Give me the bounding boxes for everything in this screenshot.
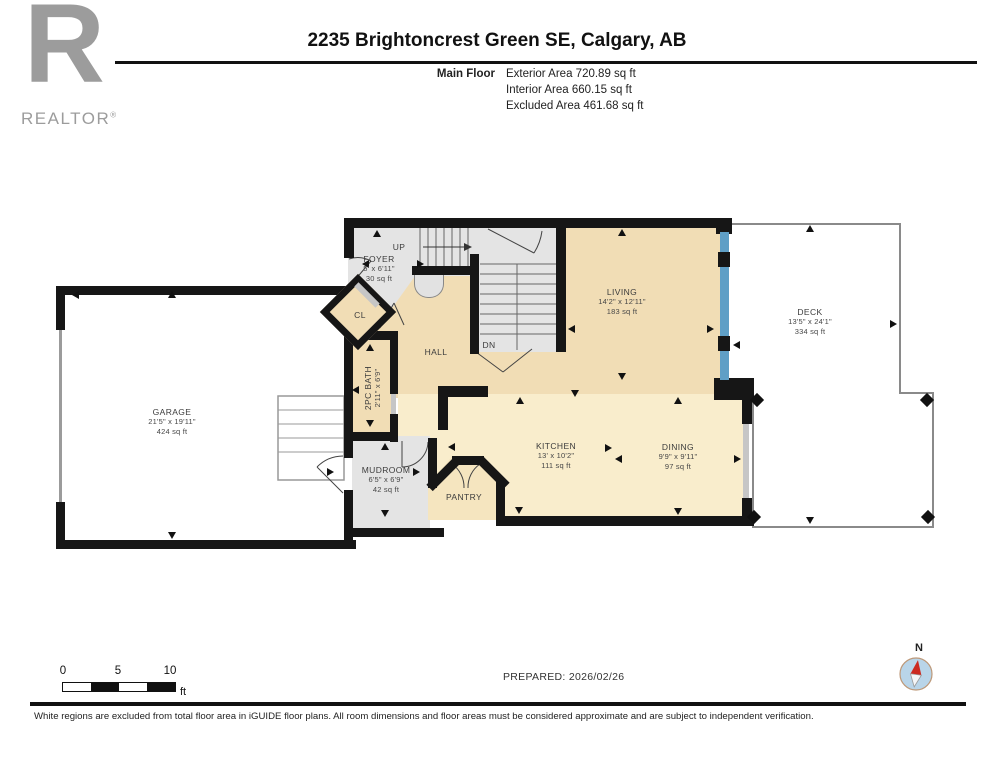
deck-post-icon [920, 393, 934, 407]
wall [718, 336, 730, 351]
living-name: LIVING [598, 287, 646, 297]
wall [718, 252, 730, 267]
wall [346, 528, 444, 537]
measurement-arrow-icon [417, 260, 424, 268]
garage-dims: 21'5" x 19'11" [148, 417, 196, 427]
measurement-arrow-icon [615, 455, 622, 463]
garage-name: GARAGE [148, 407, 196, 417]
wall [498, 516, 754, 526]
measurement-arrow-icon [168, 532, 176, 539]
measurement-arrow-icon [72, 291, 79, 299]
header-rule [115, 61, 977, 64]
stairs-dn-fill [476, 222, 564, 352]
stairs-up-label: UP [393, 242, 406, 252]
stairs-dn-label: DN [482, 340, 495, 350]
foyer-dims: 5' x 6'11" [363, 264, 395, 274]
floor-plan-page: R REALTOR® 2235 Brightoncrest Green SE, … [0, 0, 994, 768]
kitchen-area: 111 sq ft [536, 461, 576, 471]
mudroom-area: 42 sq ft [362, 485, 411, 495]
room-label-mudroom: MUDROOM 6'5" x 6'9" 42 sq ft [362, 465, 411, 495]
hall-name: HALL [425, 347, 448, 357]
wall [438, 386, 448, 430]
measurement-arrow-icon [568, 325, 575, 333]
measurement-arrow-icon [674, 397, 682, 404]
garage-side-window [59, 330, 62, 502]
living-dims: 14'2" x 12'11" [598, 297, 646, 307]
measurement-arrow-icon [890, 320, 897, 328]
measurement-arrow-icon [448, 443, 455, 451]
compass-north-label: N [915, 642, 923, 654]
garage-area: 424 sq ft [148, 427, 196, 437]
deck-name: DECK [788, 307, 832, 317]
exterior-area: Exterior Area 720.89 sq ft [506, 68, 726, 80]
measurement-arrow-icon [674, 508, 682, 515]
measurement-arrow-icon [352, 386, 359, 394]
dining-name: DINING [659, 442, 698, 452]
dining-dims: 9'9" x 9'11" [659, 452, 698, 462]
measurement-arrow-icon [381, 443, 389, 450]
scale-bar [62, 682, 176, 692]
room-label-closet: CL [354, 310, 366, 320]
wall [390, 338, 398, 394]
room-label-bath: 2PC BATH 2'11" x 6'9" [363, 366, 383, 410]
compass-icon: N [894, 638, 940, 696]
kitchen-dims: 13' x 10'2" [536, 451, 576, 461]
bath-name: 2PC BATH [363, 366, 373, 410]
dining-area: 97 sq ft [659, 462, 698, 472]
measurement-arrow-icon [515, 507, 523, 514]
wall [556, 218, 566, 352]
deck-outline [730, 224, 933, 527]
measurement-arrow-icon [168, 291, 176, 298]
measurement-arrow-icon [806, 225, 814, 232]
room-label-kitchen: KITCHEN 13' x 10'2" 111 sq ft [536, 441, 576, 471]
deck-dims: 13'5" x 24'1" [788, 317, 832, 327]
measurement-arrow-icon [618, 373, 626, 380]
deck-area: 334 sq ft [788, 327, 832, 337]
mudroom-name: MUDROOM [362, 465, 411, 475]
wall [346, 218, 730, 228]
scale-segment [119, 683, 147, 691]
bath-door [391, 394, 396, 414]
measurement-arrow-icon [571, 390, 579, 397]
foyer-area: 30 sq ft [363, 274, 395, 284]
wall [56, 540, 356, 549]
measurement-arrow-icon [366, 420, 374, 427]
room-label-up: UP [393, 242, 406, 252]
room-label-dn: DN [482, 340, 495, 350]
measurement-arrow-icon [734, 455, 741, 463]
scale-tick-10: 10 [164, 665, 177, 677]
measurement-arrow-icon [327, 468, 334, 476]
measurement-arrow-icon [733, 341, 740, 349]
dining-window [743, 424, 749, 498]
measurement-arrow-icon [373, 230, 381, 237]
room-label-pantry: PANTRY [446, 492, 482, 502]
disclaimer-text: White regions are excluded from total fl… [34, 711, 984, 722]
kitchen-name: KITCHEN [536, 441, 576, 451]
room-label-dining: DINING 9'9" x 9'11" 97 sq ft [659, 442, 698, 472]
measurement-arrow-icon [381, 510, 389, 517]
realtor-logo-text: REALTOR® [21, 109, 118, 129]
scale-segment [147, 683, 175, 691]
room-label-deck: DECK 13'5" x 24'1" 334 sq ft [788, 307, 832, 337]
wall [56, 286, 65, 330]
garage-steps [278, 396, 344, 480]
measurement-arrow-icon [413, 468, 420, 476]
realtor-brand: REALTOR [21, 109, 110, 128]
room-label-foyer: FOYER 5' x 6'11" 30 sq ft [363, 254, 395, 284]
measurement-arrow-icon [618, 229, 626, 236]
measurement-arrow-icon [366, 344, 374, 351]
scale-tick-0: 0 [60, 665, 66, 677]
measurement-arrow-icon [707, 325, 714, 333]
room-label-living: LIVING 14'2" x 12'11" 183 sq ft [598, 287, 646, 317]
interior-area: Interior Area 660.15 sq ft [506, 84, 726, 96]
room-label-garage: GARAGE 21'5" x 19'11" 424 sq ft [148, 407, 196, 437]
scale-tick-5: 5 [115, 665, 121, 677]
footer-rule [30, 702, 966, 706]
excluded-area: Excluded Area 461.68 sq ft [506, 100, 726, 112]
room-label-hall: HALL [425, 347, 448, 357]
page-title: 2235 Brightoncrest Green SE, Calgary, AB [0, 30, 994, 52]
wall [714, 378, 754, 400]
mudroom-dims: 6'5" x 6'9" [362, 475, 411, 485]
foyer-name: FOYER [363, 254, 395, 264]
floor-label: Main Floor [380, 68, 495, 80]
wall [56, 286, 350, 295]
prepared-date: PREPARED: 2026/02/26 [503, 671, 624, 683]
deck-post-icon [921, 510, 935, 524]
scale-unit: ft [180, 686, 186, 698]
realtor-logo-icon: R [24, 0, 101, 104]
closet-name: CL [354, 310, 366, 320]
bath-dims: 2'11" x 6'9" [373, 366, 383, 410]
wall [344, 218, 354, 258]
scale-segment [91, 683, 119, 691]
wall [344, 490, 353, 549]
living-area: 183 sq ft [598, 307, 646, 317]
measurement-arrow-icon [516, 397, 524, 404]
scale-segment [63, 683, 91, 691]
wall [390, 414, 398, 442]
registered-mark: ® [110, 110, 117, 119]
measurement-arrow-icon [605, 444, 612, 452]
measurement-arrow-icon [806, 517, 814, 524]
pantry-name: PANTRY [446, 492, 482, 502]
